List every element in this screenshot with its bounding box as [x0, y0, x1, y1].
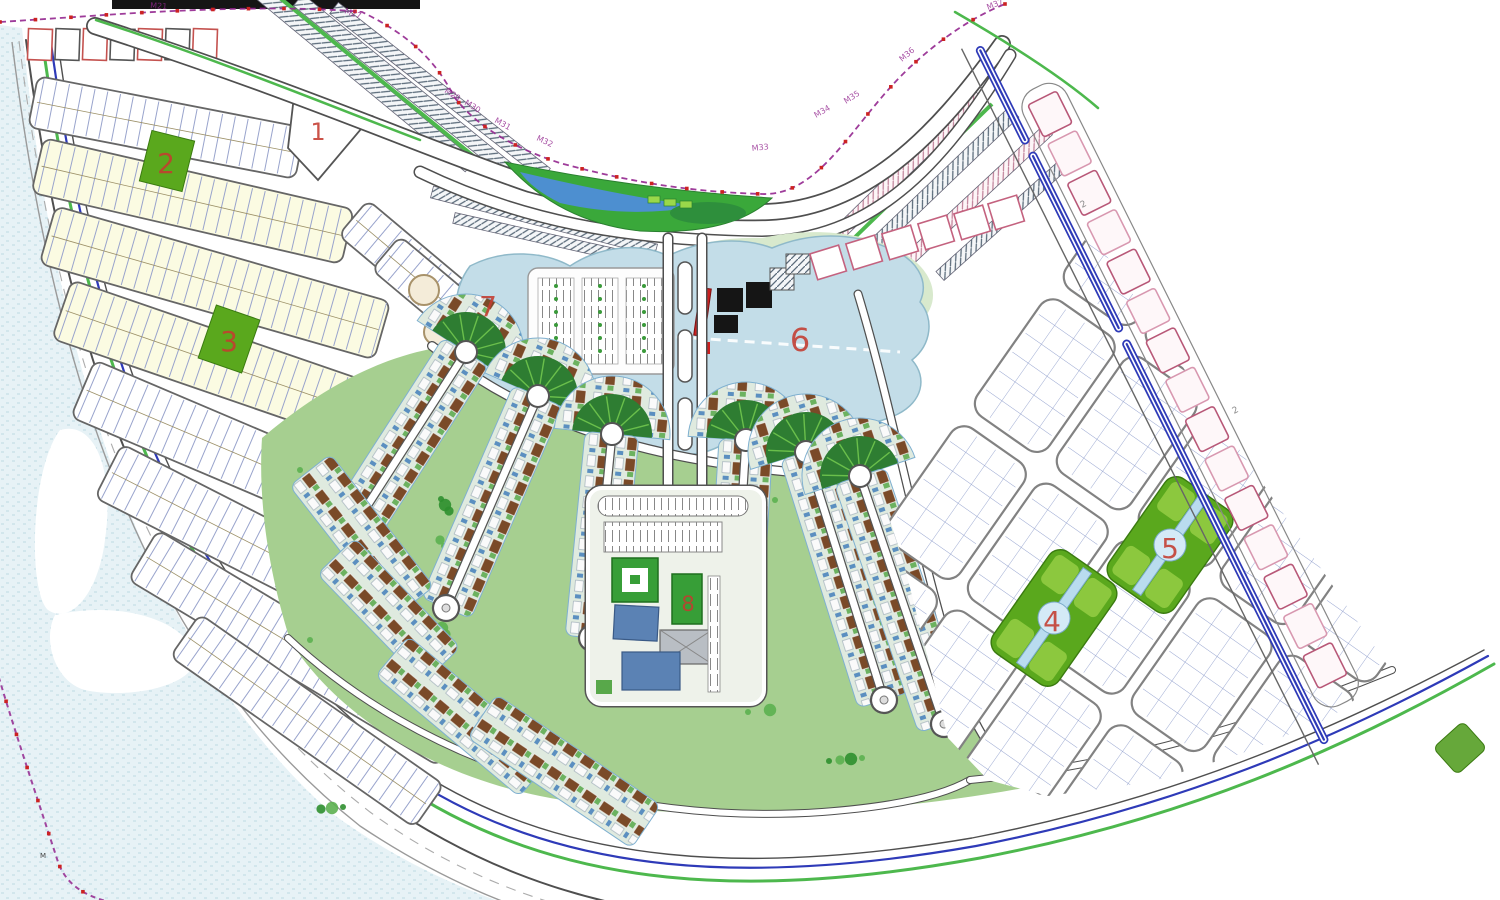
green-corner-plot — [1433, 721, 1487, 775]
zone-label-8: 8 — [681, 592, 694, 616]
median-island — [678, 330, 692, 382]
milestone-label: M34 — [813, 103, 832, 119]
pool — [613, 605, 659, 641]
sw-milestone-label: M — [40, 852, 46, 860]
garden-patch — [596, 680, 612, 694]
plot-label-2b: 2 — [1231, 405, 1241, 417]
milestone-label: M21 — [150, 1, 168, 11]
shore-bulb-plot — [409, 275, 439, 305]
cabana-row — [708, 576, 720, 692]
hotel-resort-zone-8 — [588, 488, 764, 704]
zone-label-4: 4 — [1043, 605, 1061, 638]
zone-label-2: 2 — [157, 147, 175, 180]
milestone-label: M37 — [985, 0, 1004, 12]
milestone-label: M35 — [842, 89, 861, 106]
median-island — [678, 262, 692, 314]
zone-label-7: 7 — [479, 290, 497, 323]
milestone-label: M33 — [751, 142, 769, 153]
milestone-label: M36 — [898, 46, 917, 64]
pool — [622, 652, 680, 690]
zone-label-3: 3 — [220, 325, 238, 358]
zone-label-5: 5 — [1161, 532, 1179, 565]
zone-label-6: 6 — [790, 321, 810, 359]
site-plan-canvas: M21 M27 M29 M30 M31 M32 M33 M34 M35 M36 … — [0, 0, 1500, 900]
zone-label-1: 1 — [310, 118, 325, 146]
master-plan-map: M21 M27 M29 M30 M31 M32 M33 M34 M35 M36 … — [0, 0, 1500, 900]
milestone-label: M32 — [535, 134, 554, 149]
